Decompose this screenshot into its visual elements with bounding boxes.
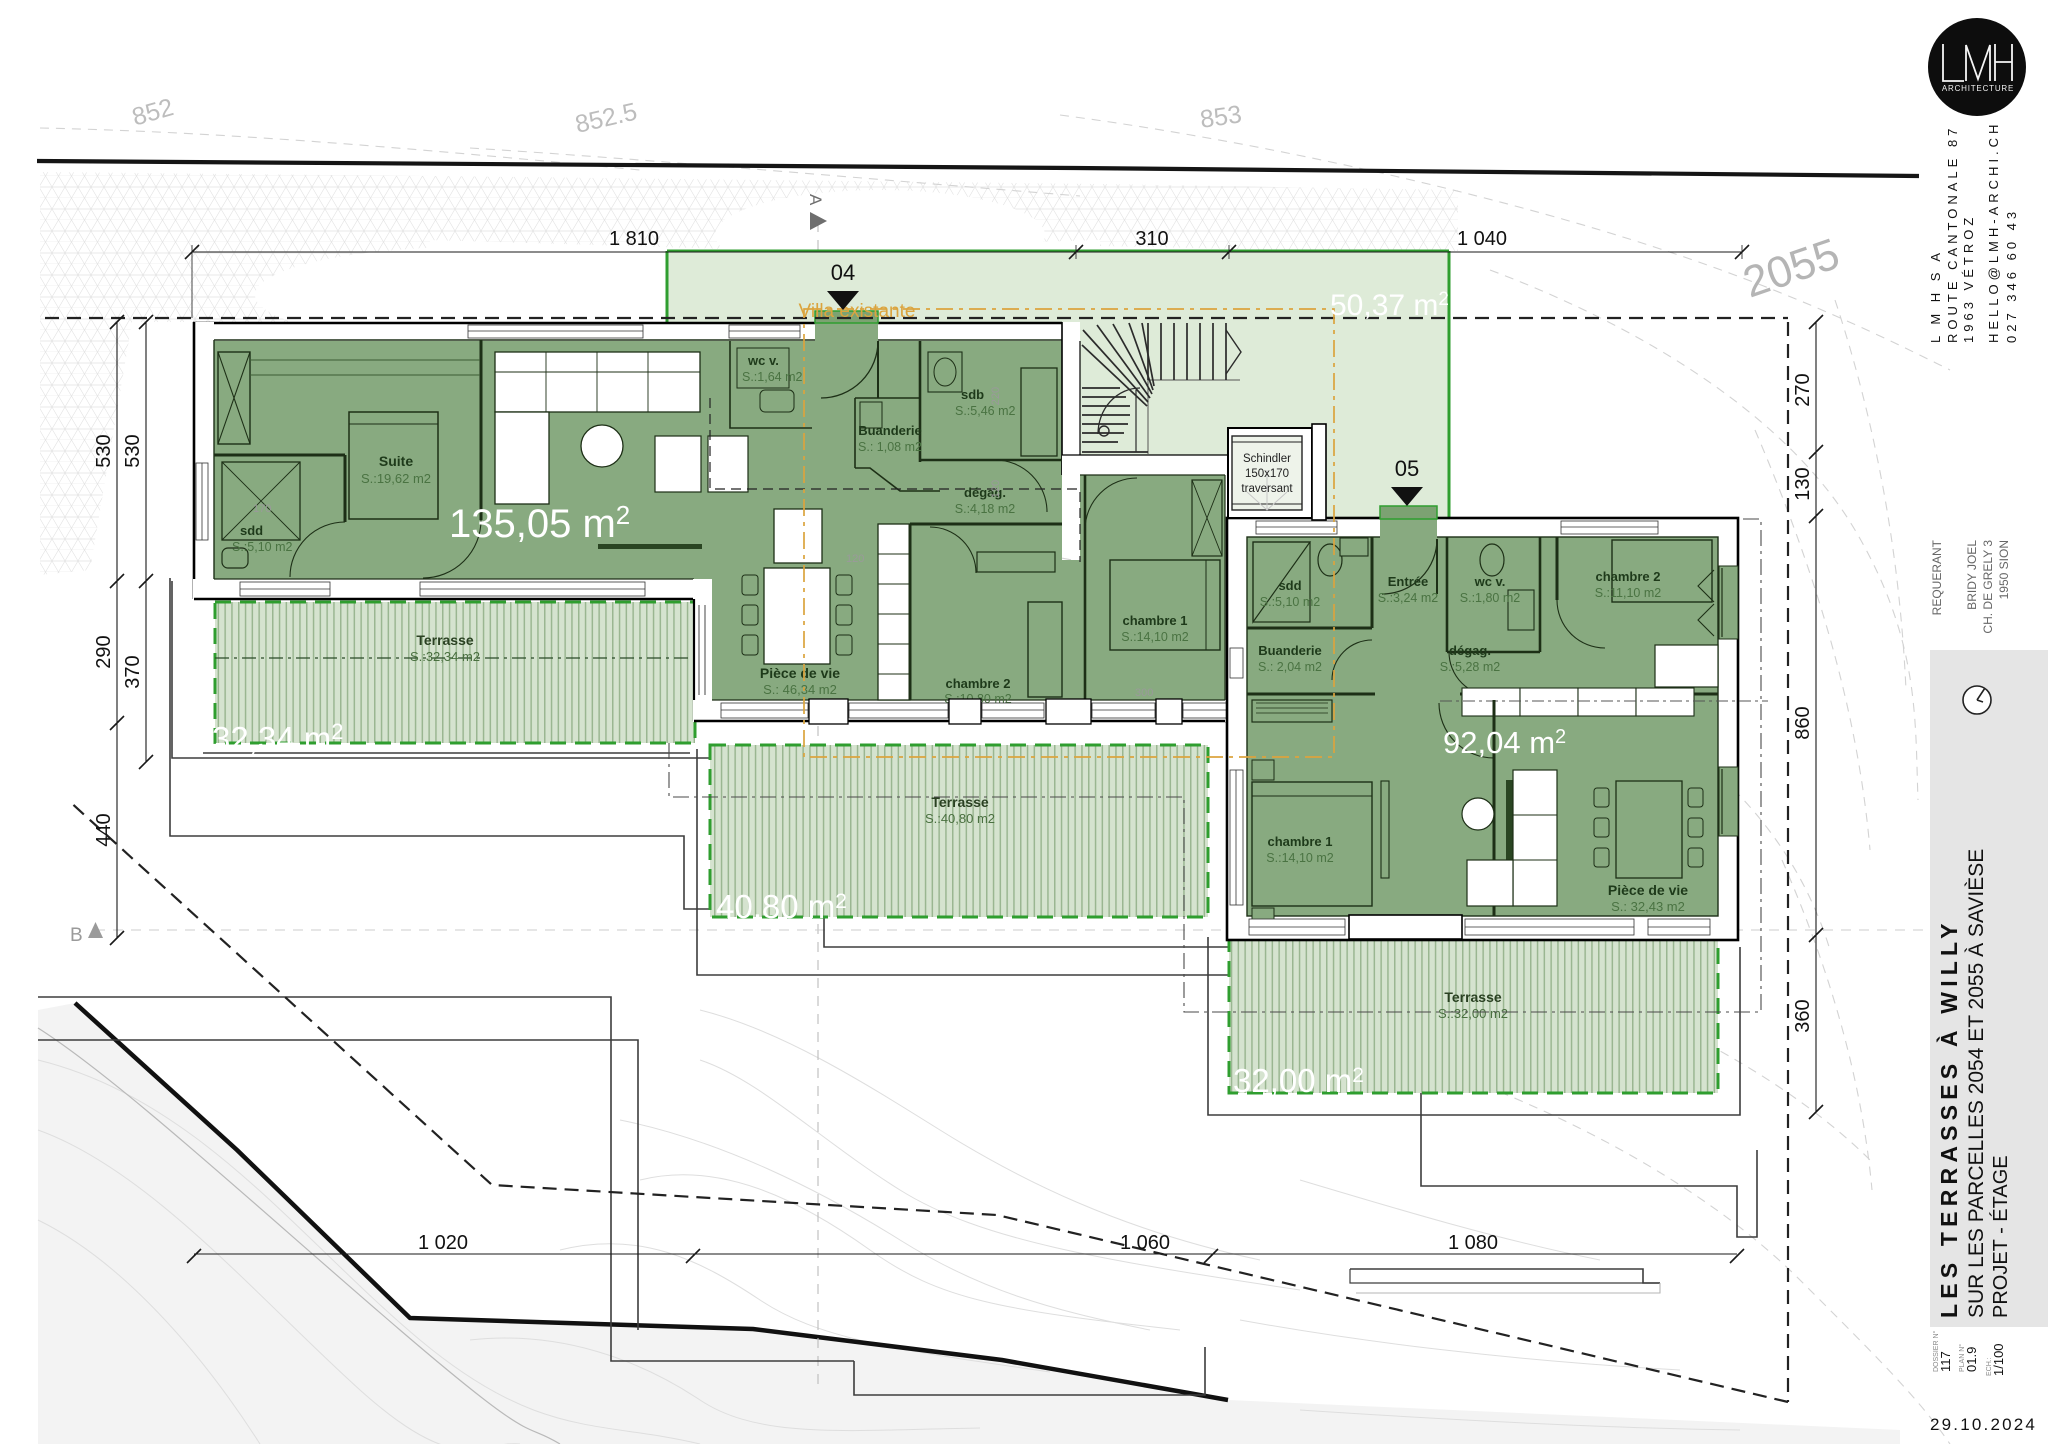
svg-text:S.:14,10 m2: S.:14,10 m2 — [1266, 851, 1333, 865]
svg-text:440: 440 — [93, 813, 115, 846]
svg-text:1 080: 1 080 — [1448, 1232, 1498, 1254]
svg-text:29.10.2024: 29.10.2024 — [1930, 1415, 2037, 1434]
svg-text:370: 370 — [122, 655, 144, 688]
svg-text:S.: 32,43 m2: S.: 32,43 m2 — [1611, 899, 1685, 914]
svg-text:ROUTE CANTONALE 87: ROUTE CANTONALE 87 — [1945, 125, 1960, 343]
svg-text:300: 300 — [1135, 687, 1153, 699]
svg-text:S.: 46,34 m2: S.: 46,34 m2 — [763, 682, 837, 697]
svg-text:sdb: sdb — [961, 387, 984, 402]
svg-text:853: 853 — [1198, 100, 1243, 134]
svg-text:1963 VÉTROZ: 1963 VÉTROZ — [1961, 214, 1976, 343]
svg-text:SUR LES PARCELLES 2054 ET 2055: SUR LES PARCELLES 2054 ET 2055 À SAVIÈSE — [1965, 849, 1988, 1318]
svg-text:Suite: Suite — [379, 453, 413, 469]
svg-text:wc v.: wc v. — [747, 353, 779, 368]
svg-text:Schindler: Schindler — [1243, 453, 1291, 465]
svg-text:Pièce de vie: Pièce de vie — [1608, 882, 1688, 898]
svg-text:S.:4,18 m2: S.:4,18 m2 — [955, 502, 1015, 516]
svg-text:PROJET - ÉTAGE: PROJET - ÉTAGE — [1989, 1155, 2012, 1318]
svg-text:120: 120 — [990, 480, 1002, 498]
svg-text:S.:5,10 m2: S.:5,10 m2 — [232, 540, 292, 554]
svg-text:32,34 m2: 32,34 m2 — [212, 719, 344, 757]
svg-text:S.:3,24 m2: S.:3,24 m2 — [1378, 591, 1438, 605]
svg-text:130: 130 — [1792, 467, 1814, 500]
svg-text:wc v.: wc v. — [1474, 574, 1506, 589]
svg-text:S.: 2,04 m2: S.: 2,04 m2 — [1258, 660, 1322, 674]
svg-text:360: 360 — [1792, 999, 1814, 1032]
svg-text:S.:14,10 m2: S.:14,10 m2 — [1121, 630, 1188, 644]
svg-text:REQUERANT: REQUERANT — [1930, 539, 1944, 615]
svg-text:S.:11,10 m2: S.:11,10 m2 — [1595, 586, 1662, 600]
svg-text:S.:1,80 m2: S.:1,80 m2 — [1460, 591, 1520, 605]
svg-text:04: 04 — [831, 260, 855, 285]
svg-text:S.:1,64 m2: S.:1,64 m2 — [742, 370, 802, 384]
svg-text:Entrée: Entrée — [1388, 574, 1428, 589]
svg-text:1 810: 1 810 — [609, 228, 659, 250]
svg-text:027 346 60 43: 027 346 60 43 — [2004, 208, 2019, 343]
svg-text:S.:32,34 m2: S.:32,34 m2 — [410, 649, 480, 664]
svg-text:Buanderie: Buanderie — [858, 423, 922, 438]
svg-text:Villa existante: Villa existante — [799, 301, 916, 322]
svg-text:chambre 1: chambre 1 — [1267, 834, 1332, 849]
svg-text:LES TERRASSES À WILLY: LES TERRASSES À WILLY — [1935, 918, 1962, 1318]
svg-text:1 040: 1 040 — [1457, 228, 1507, 250]
svg-text:1 060: 1 060 — [1120, 1232, 1170, 1254]
svg-text:S.:32,00 m2: S.:32,00 m2 — [1438, 1006, 1508, 1021]
svg-text:220: 220 — [990, 387, 1002, 405]
svg-text:530: 530 — [122, 434, 144, 467]
svg-text:chambre 2: chambre 2 — [945, 676, 1010, 691]
svg-text:CH. DE GRELY 3: CH. DE GRELY 3 — [1981, 540, 1995, 634]
svg-text:117: 117 — [1938, 1351, 1953, 1372]
svg-text:S.:5,28 m2: S.:5,28 m2 — [1440, 660, 1500, 674]
svg-text:170: 170 — [253, 503, 271, 515]
svg-text:Terrasse: Terrasse — [931, 794, 989, 810]
svg-text:S.:40,80 m2: S.:40,80 m2 — [925, 811, 995, 826]
svg-text:135,05 m2: 135,05 m2 — [449, 500, 630, 546]
svg-text:B: B — [70, 925, 83, 946]
svg-text:sdd: sdd — [240, 523, 263, 538]
svg-text:sdd: sdd — [1278, 578, 1301, 593]
svg-text:310: 310 — [1135, 228, 1168, 250]
svg-text:150x170: 150x170 — [1245, 468, 1289, 480]
svg-text:BRIDY JOEL: BRIDY JOEL — [1965, 540, 1979, 610]
svg-text:Terrasse: Terrasse — [1444, 989, 1502, 1005]
svg-text:ARCHITECTURE: ARCHITECTURE — [1942, 84, 2014, 93]
svg-text:dégag.: dégag. — [1449, 643, 1491, 658]
svg-text:05: 05 — [1395, 456, 1419, 481]
svg-text:Buanderie: Buanderie — [1258, 643, 1322, 658]
svg-text:S.:5,10 m2: S.:5,10 m2 — [1260, 595, 1320, 609]
svg-text:S.:19,62 m2: S.:19,62 m2 — [361, 471, 431, 486]
svg-text:L M H S A: L M H S A — [1928, 249, 1943, 343]
svg-text:Pièce de vie: Pièce de vie — [760, 665, 840, 681]
svg-text:traversant: traversant — [1241, 483, 1293, 495]
svg-text:290: 290 — [93, 635, 115, 668]
svg-text:32,00 m2: 32,00 m2 — [1233, 1062, 1364, 1099]
svg-text:120: 120 — [846, 553, 864, 565]
svg-text:chambre 2: chambre 2 — [1595, 569, 1660, 584]
svg-text:S.:5,46 m2: S.:5,46 m2 — [955, 404, 1015, 418]
svg-text:270: 270 — [1792, 373, 1814, 406]
svg-text:40,80 m2: 40,80 m2 — [716, 888, 847, 925]
svg-text:50,37 m2: 50,37 m2 — [1330, 289, 1449, 322]
svg-text:A: A — [806, 194, 825, 206]
svg-text:1 020: 1 020 — [418, 1232, 468, 1254]
svg-text:860: 860 — [1792, 706, 1814, 739]
svg-text:1950 SION: 1950 SION — [1997, 540, 2011, 599]
svg-text:chambre 1: chambre 1 — [1122, 613, 1187, 628]
svg-text:S.: 1,08 m2: S.: 1,08 m2 — [858, 440, 922, 454]
svg-text:01.9: 01.9 — [1964, 1347, 1979, 1372]
svg-text:HELLO@LMH-ARCHI.CH: HELLO@LMH-ARCHI.CH — [1986, 121, 2001, 343]
svg-text:Terrasse: Terrasse — [416, 632, 474, 648]
svg-text:1/100: 1/100 — [1991, 1343, 2006, 1376]
svg-text:92,04 m2: 92,04 m2 — [1443, 725, 1566, 760]
svg-text:530: 530 — [93, 434, 115, 467]
